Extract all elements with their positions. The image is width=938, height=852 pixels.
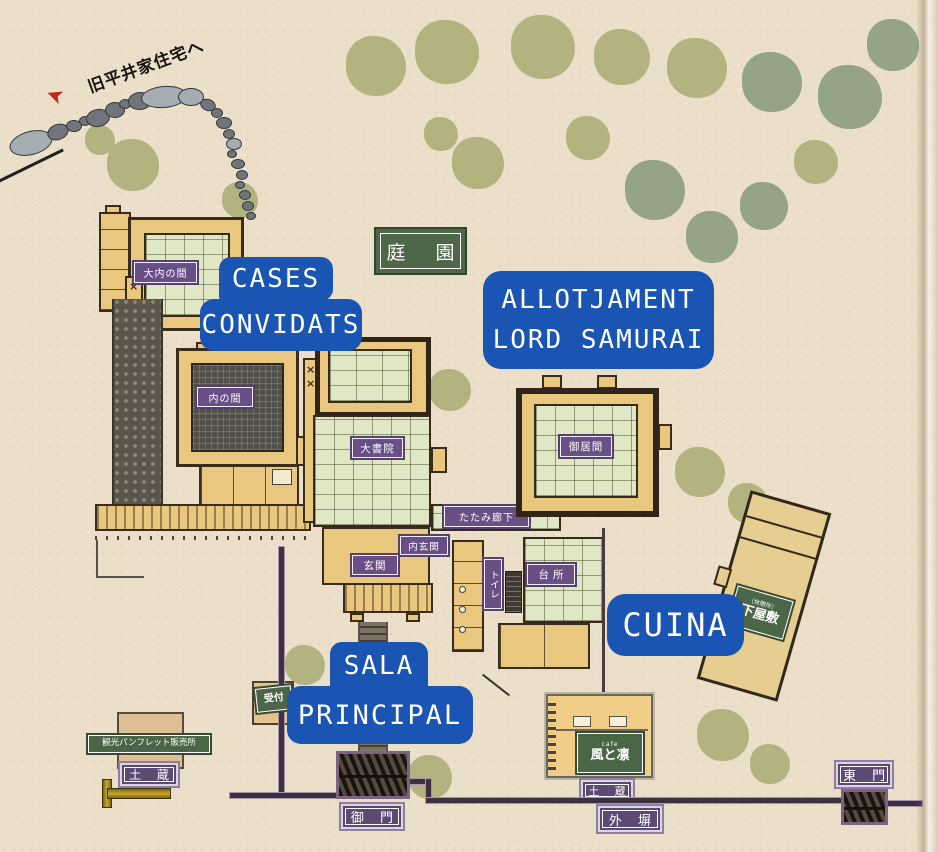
west-wall: [279, 547, 284, 797]
storehouse-west-label: 土 蔵: [120, 763, 178, 786]
room-label-living-room: 御居間: [560, 436, 612, 457]
overlay-guest-houses-top: CASES: [219, 257, 333, 301]
toilet-fixture-icon: [459, 626, 466, 633]
hatch-x-icon: ×: [306, 378, 315, 389]
roof-line: [746, 515, 821, 538]
gold-gate-beam: [107, 788, 171, 799]
outer-wall-segment: [230, 793, 338, 798]
stepping-stone: [231, 159, 245, 169]
pamphlet-office-sign: 観光パンフレット販売所: [88, 735, 210, 753]
lord-quarters-top-bump: [597, 375, 617, 389]
stepping-stone: [246, 212, 256, 220]
toilet-column: [452, 540, 484, 652]
fence-line: [96, 540, 98, 578]
sign-text: 観光パンフレット販売所: [102, 739, 196, 749]
tree: [285, 645, 325, 685]
page-edge: [916, 0, 938, 852]
entrance-steps: [343, 583, 433, 613]
east-gate-label: 東 門: [836, 762, 892, 787]
hatch-x-icon: ×: [306, 364, 315, 375]
annex-cell: [272, 469, 292, 485]
main-gate-structure: [336, 751, 410, 799]
outer-wall-segment: [426, 798, 846, 803]
overlay-line: ALLOTJAMENT: [501, 280, 695, 320]
inner-room-floor: [191, 363, 284, 452]
side-tab: [713, 565, 732, 588]
sign-text: 受付: [263, 692, 284, 706]
tree: [867, 19, 919, 71]
tree: [566, 116, 610, 160]
overlay-main-hall-bottom: PRINCIPAL: [287, 686, 473, 744]
kitchen-stairs: [505, 571, 522, 613]
path-tick: [482, 674, 510, 697]
tree: [667, 38, 727, 98]
room-label-kitchen: 台所: [527, 564, 575, 585]
tree: [511, 15, 575, 79]
main-gate-label: 御 門: [341, 804, 403, 829]
tree: [742, 52, 802, 112]
toilet-fixture-icon: [459, 586, 466, 593]
room-label-toilet: トイレ: [484, 559, 502, 609]
kitchen-fence: [602, 528, 605, 692]
east-gate-structure: [841, 789, 888, 825]
toilet-fixture-icon: [459, 606, 466, 613]
tree: [85, 125, 115, 155]
tree: [794, 140, 838, 184]
overlay-lord-lodging: ALLOTJAMENT LORD SAMURAI: [483, 271, 714, 369]
overlay-kitchen: CUINA: [607, 594, 744, 656]
corridor-posts: [95, 536, 311, 540]
overlay-line: LORD SAMURAI: [493, 320, 705, 360]
stepping-stone: [236, 170, 248, 180]
garden-sign: 庭 園: [374, 227, 467, 275]
fence-line: [96, 576, 144, 578]
door-cell: [573, 716, 591, 727]
sign-text: 風と凛: [590, 749, 629, 764]
room-label-great-shoin: 大書院: [352, 438, 403, 458]
main-hall-tatami: [313, 415, 431, 527]
wall-ticks: [548, 702, 556, 770]
tree: [675, 447, 725, 497]
lord-quarters-east-bump: [658, 424, 672, 450]
overlay-main-hall-top: SALA: [330, 642, 428, 690]
site-map: ➤ 旧平井家住宅へ × × 大内の間 内の間 × × 大書院 内玄関 玄関 たた…: [0, 0, 938, 852]
floor-line: [556, 729, 648, 731]
tree: [740, 182, 788, 230]
tree: [452, 137, 504, 189]
tree: [697, 709, 749, 761]
stone-passage: [112, 299, 163, 525]
lord-quarters-top-bump: [542, 375, 562, 389]
cafe-sign: cafe 風と凛: [577, 733, 643, 773]
stepping-stone: [226, 138, 242, 150]
tree: [346, 36, 406, 96]
tree: [750, 744, 790, 784]
tree: [625, 160, 685, 220]
tree: [415, 20, 479, 84]
room-label-entrance: 玄関: [352, 555, 398, 575]
gate-ridge: [844, 807, 885, 810]
tree: [818, 65, 882, 129]
tree: [107, 139, 159, 191]
main-hall-east-bump: [431, 447, 447, 473]
tree: [594, 29, 650, 85]
stepping-stone: [227, 150, 237, 158]
stepping-stone: [216, 117, 232, 129]
garden-sign-text: 庭 園: [380, 233, 461, 269]
stepping-stone: [235, 181, 245, 189]
room-label-inner-entrance: 内玄関: [400, 536, 448, 555]
tree: [686, 211, 738, 263]
cafe-building: cafe 風と凛: [546, 694, 653, 778]
room-label-great-inner-room: 大内の間: [134, 262, 197, 283]
roof-line: [740, 536, 815, 559]
overlay-guest-houses-bottom: CONVIDATS: [200, 299, 362, 351]
stepping-stone: [239, 190, 251, 200]
west-corridor: [95, 504, 311, 531]
main-hall-upper-tatami: [328, 349, 412, 403]
direction-arrow-icon: ➤: [42, 82, 67, 111]
tree: [429, 369, 471, 411]
gate-ridge: [339, 775, 407, 778]
room-label-inner-room: 内の間: [197, 387, 253, 407]
entrance-foot: [350, 613, 364, 622]
stepping-stone: [242, 201, 254, 211]
entrance-foot: [406, 613, 420, 622]
kitchen-annex: [498, 623, 590, 669]
tree: [424, 117, 458, 151]
door-cell: [609, 716, 627, 727]
outer-wall-label: 外 塀: [598, 806, 662, 832]
